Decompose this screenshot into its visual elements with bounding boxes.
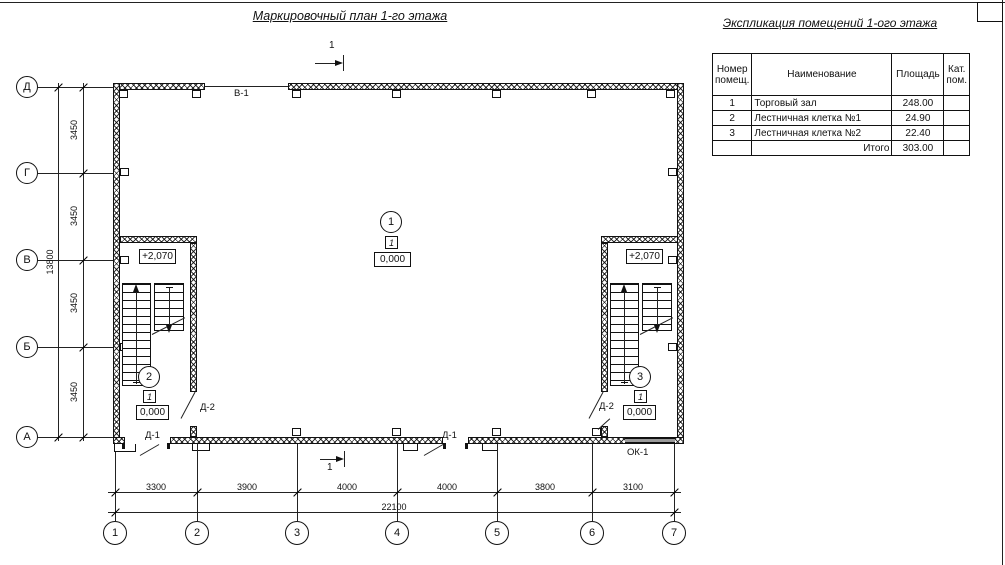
- col-axis-bubble: 4: [385, 521, 409, 545]
- drawing-sheet: Маркировочный план 1-го этажа Экспликаци…: [0, 0, 1005, 565]
- room-area-cell: 24.90: [892, 111, 944, 126]
- dimension-value: 3800: [520, 482, 570, 492]
- opening-v1-line: [205, 86, 288, 87]
- wall-left: [113, 83, 120, 444]
- table-row: 3 Лестничная клетка №2 22.40: [713, 126, 970, 141]
- dimension-value: 3900: [222, 482, 272, 492]
- stair-arrow-up-head: [621, 284, 627, 292]
- entry-porch: [192, 444, 210, 451]
- dimension-value: 3450: [68, 283, 80, 323]
- stairwell-right-top-wall: [601, 236, 678, 243]
- pilaster: [119, 90, 128, 98]
- section-mark-label: 1: [327, 462, 333, 473]
- door-frame-stub: [122, 443, 125, 449]
- room-number-cell: 3: [713, 126, 752, 141]
- sheet-frame-right-line: [1002, 0, 1003, 565]
- pilaster: [592, 428, 601, 436]
- wall-bottom-segment-2: [170, 437, 443, 444]
- window-label-v1: В-1: [234, 88, 249, 99]
- sheet-frame-top-line: [0, 2, 1005, 3]
- door-label-d1: Д-1: [442, 430, 457, 441]
- dimension-value: 3450: [68, 196, 80, 236]
- row-axis-bubble: Г: [16, 162, 38, 184]
- room-number-cell: 2: [713, 111, 752, 126]
- wall-right: [677, 83, 684, 444]
- dimension-value: 3100: [608, 482, 658, 492]
- pilaster: [668, 256, 677, 264]
- stairwell-right-wall-stub: [601, 426, 608, 437]
- stair-arrow-up-head: [133, 284, 139, 292]
- axis-line: [38, 437, 113, 438]
- stair-arrow-start-bar: [654, 287, 661, 288]
- stair-arrow-up-line: [136, 290, 137, 384]
- stairwell-left-side-wall: [190, 243, 197, 392]
- dimension-value: 4000: [422, 482, 472, 492]
- room-name-cell: Торговый зал: [752, 96, 892, 111]
- door-frame-stub: [443, 443, 446, 449]
- header-room-number: Номер помещ.: [713, 54, 752, 96]
- pilaster: [120, 256, 129, 264]
- section-cut-tick: [343, 55, 344, 71]
- stair-arrow-start-bar: [621, 382, 628, 383]
- stairwell-right-side-wall: [601, 243, 608, 392]
- section-mark-label: 1: [329, 40, 335, 51]
- door-leaf-line: [181, 392, 196, 419]
- col-axis-bubble: 7: [662, 521, 686, 545]
- col-axis-bubble: 2: [185, 521, 209, 545]
- stair-arrow-down-head: [654, 325, 660, 333]
- pilaster: [666, 90, 675, 98]
- room-category-cell: [944, 111, 970, 126]
- pilaster: [492, 90, 501, 98]
- stair-arrow-down-line: [169, 287, 170, 327]
- col-axis-bubble: 3: [285, 521, 309, 545]
- dimension-line-horizontal-total: [108, 512, 681, 513]
- stairwell-left-wall-stub: [190, 426, 197, 437]
- stair-arrow-down-head: [166, 325, 172, 333]
- dimension-value: 4000: [322, 482, 372, 492]
- section-arrow-head: [335, 60, 343, 66]
- pilaster: [587, 90, 596, 98]
- total-label-cell: Итого: [752, 141, 892, 156]
- pilaster: [192, 90, 201, 98]
- level-mark-upper: +2,070: [626, 249, 663, 264]
- window-ok1: [625, 438, 675, 443]
- door-label-d2: Д-2: [200, 402, 215, 413]
- dimension-line-vertical-segments: [83, 83, 84, 441]
- room-name-cell: Лестничная клетка №1: [752, 111, 892, 126]
- axis-line: [38, 87, 113, 88]
- level-mark: 0,000: [374, 252, 411, 267]
- axis-extension-line: [197, 444, 198, 521]
- section-arrow-head: [336, 456, 344, 462]
- table-total-row: Итого 303.00: [713, 141, 970, 156]
- header-room-area: Площадь: [892, 54, 944, 96]
- total-empty-cell: [713, 141, 752, 156]
- level-mark: 0,000: [136, 405, 169, 420]
- room-schedule-title: Экспликация помещений 1-ого этажа: [705, 16, 955, 30]
- room-area-cell: 22.40: [892, 126, 944, 141]
- total-value-cell: 303.00: [892, 141, 944, 156]
- pilaster: [120, 168, 129, 176]
- stair-arrow-down-line: [657, 287, 658, 327]
- entry-porch: [482, 444, 498, 451]
- dimension-value: 3450: [68, 110, 80, 150]
- header-room-category: Кат. пом.: [944, 54, 970, 96]
- stairwell-left-top-wall: [120, 236, 197, 243]
- pilaster: [392, 90, 401, 98]
- room-category-cell: [944, 126, 970, 141]
- total-empty-cell: [944, 141, 970, 156]
- axis-line: [38, 347, 113, 348]
- entry-porch: [114, 444, 136, 452]
- room-type-box: 1: [385, 236, 398, 249]
- door-label-d2: Д-2: [599, 401, 614, 412]
- door-frame-stub: [465, 443, 468, 449]
- room-number-circle: 1: [380, 211, 402, 233]
- pilaster: [668, 343, 677, 351]
- dimension-value: 3300: [131, 482, 181, 492]
- row-axis-bubble: Б: [16, 336, 38, 358]
- room-type-box: 1: [634, 390, 647, 403]
- window-label-ok1: ОК-1: [627, 447, 648, 458]
- row-axis-bubble: Д: [16, 76, 38, 98]
- room-number-circle: 2: [138, 366, 160, 388]
- pilaster: [292, 428, 301, 436]
- header-room-name: Наименование: [752, 54, 892, 96]
- axis-extension-line: [674, 444, 675, 521]
- col-axis-bubble: 6: [580, 521, 604, 545]
- entry-porch: [403, 444, 418, 451]
- pilaster: [668, 168, 677, 176]
- pilaster: [392, 428, 401, 436]
- stair-arrow-start-bar: [166, 287, 173, 288]
- dimension-total-value: 13800: [44, 242, 56, 282]
- table-header-row: Номер помещ. Наименование Площадь Кат. п…: [713, 54, 970, 96]
- axis-extension-line: [297, 444, 298, 521]
- dimension-line-vertical-total: [58, 83, 59, 441]
- axis-extension-line: [592, 444, 593, 521]
- stair-arrow-up-line: [624, 290, 625, 384]
- dimension-total-value: 22100: [369, 502, 419, 512]
- level-mark: 0,000: [623, 405, 656, 420]
- pilaster: [292, 90, 301, 98]
- pilaster: [492, 428, 501, 436]
- room-number-cell: 1: [713, 96, 752, 111]
- level-mark-upper: +2,070: [139, 249, 176, 264]
- row-axis-bubble: А: [16, 426, 38, 448]
- wall-top-segment-2: [288, 83, 684, 90]
- room-type-box: 1: [143, 390, 156, 403]
- plan-title: Маркировочный план 1-го этажа: [230, 9, 470, 23]
- room-category-cell: [944, 96, 970, 111]
- sheet-frame-corner-box: [977, 2, 1003, 22]
- room-schedule-table: Номер помещ. Наименование Площадь Кат. п…: [712, 53, 970, 156]
- axis-extension-line: [497, 444, 498, 521]
- table-row: 1 Торговый зал 248.00: [713, 96, 970, 111]
- col-axis-bubble: 1: [103, 521, 127, 545]
- table-row: 2 Лестничная клетка №1 24.90: [713, 111, 970, 126]
- dimension-value: 3450: [68, 372, 80, 412]
- door-label-d1: Д-1: [145, 430, 160, 441]
- wall-top-segment-1: [113, 83, 205, 90]
- section-cut-tick: [344, 451, 345, 467]
- door-frame-stub: [167, 443, 170, 449]
- axis-line: [38, 173, 113, 174]
- door-leader-line: [424, 444, 444, 456]
- col-axis-bubble: 5: [485, 521, 509, 545]
- room-area-cell: 248.00: [892, 96, 944, 111]
- room-name-cell: Лестничная клетка №2: [752, 126, 892, 141]
- row-axis-bubble: В: [16, 249, 38, 271]
- room-number-circle: 3: [629, 366, 651, 388]
- door-leader-line: [140, 444, 160, 456]
